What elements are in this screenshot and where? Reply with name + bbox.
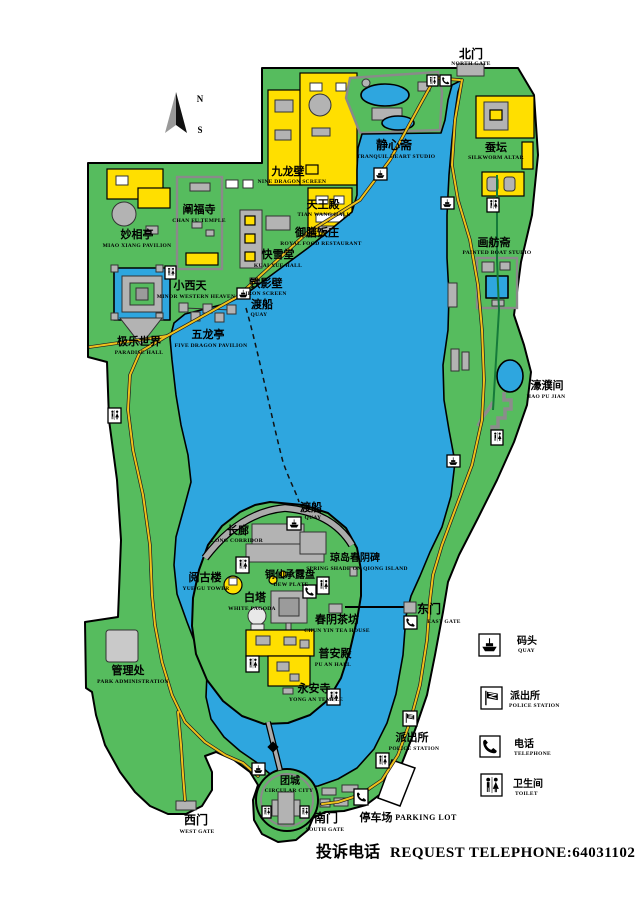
place-en: PARADISE HALL [115, 350, 164, 356]
east-gate-building [404, 602, 416, 613]
legend-zh: 码头 [517, 634, 537, 647]
place-en: LONG CORRIDOR [211, 538, 264, 544]
small-hall [275, 100, 293, 112]
place-en: NINE DRAGON SCREEN [258, 179, 327, 185]
place-zh: 五龙亭 [192, 327, 225, 341]
painted-boat-hall [482, 262, 494, 272]
place-en: SPRING SHADE ON QIONG ISLAND [306, 566, 408, 572]
place-en: TRANQUIL HEART STUDIO [357, 154, 436, 160]
legend-zh: 电话 [514, 737, 534, 750]
label-pu-an-hall: 普安殿 PU AN HALL [315, 646, 353, 668]
compass-needle-dark [176, 92, 187, 133]
place-en: DEW PLATE [273, 582, 308, 588]
kuai-xue-court [245, 216, 255, 225]
toilet-icon [246, 656, 259, 672]
place-zh: 北门 [459, 46, 483, 61]
label-police-station-map: 派出所 POLICE STATION [389, 730, 440, 752]
strip-building [451, 349, 459, 371]
toilet-icon [427, 75, 438, 86]
police-icon [403, 711, 417, 726]
place-zh: 铜仙承露盘 [265, 568, 315, 581]
yue-gu-tower-court [229, 578, 237, 585]
place-zh: 天王殿 [307, 198, 341, 211]
place-en: SILKWORM ALTAR [468, 155, 524, 161]
legend-en: QUAY [518, 648, 535, 654]
toilet-icon [236, 557, 249, 573]
temple-hall [290, 674, 299, 681]
park-admin-building [106, 630, 138, 662]
telephone-icon [354, 789, 368, 805]
label-west-gate: 西门 WEST GATE [179, 812, 214, 835]
label-iron-screen: 铁影壁 IRON SCREEN [245, 276, 286, 297]
small-hall [226, 180, 238, 188]
place-zh: 西门 [184, 812, 208, 827]
quay-icon [287, 517, 301, 530]
place-zh: 团城 [280, 774, 300, 787]
place-en: YUE GU TOWER [182, 586, 230, 592]
place-zh: 渡船 [300, 500, 322, 514]
place-zh: 极乐世界 [117, 334, 161, 348]
legend-item-toilet: 卫生间 TOILET [481, 774, 543, 797]
place-en: PAINTED BOAT STUDIO [463, 250, 532, 256]
dragon-pavilion [215, 313, 224, 322]
legend-item-telephone: 电话 TELEPHONE [480, 736, 551, 757]
toilet-icon [165, 266, 176, 279]
telephone-icon [440, 75, 451, 86]
place-en: KUAI XUE HALL [254, 263, 302, 269]
dragon-pavilion [179, 303, 188, 312]
miao-xiang-pavilion-building [112, 202, 136, 226]
compass-north-label: N [197, 94, 204, 104]
place-en: NORTH GATE [451, 61, 491, 67]
place-en: ROYAL FOOD RESTAURANT [280, 241, 362, 247]
label-paradise-hall: 极乐世界 PARADISE HALL [115, 334, 164, 356]
place-en: PU AN HALL [315, 662, 351, 668]
place-zh: 蚕坛 [484, 140, 507, 154]
legend-en: TOILET [515, 791, 538, 797]
strip-building [462, 352, 469, 370]
white-pagoda-court [279, 598, 299, 616]
place-en: PARK ADMINISTRATION [97, 679, 169, 685]
legend-item-police: 派出所 POLICE STATION [481, 687, 560, 709]
place-zh: 阅古楼 [189, 570, 222, 584]
temple-hall [300, 640, 309, 648]
west-gate-building [176, 801, 196, 810]
place-en: HAO PU JIAN [527, 394, 566, 400]
place-en: WEST GATE [179, 829, 214, 835]
tea-house-building [329, 604, 342, 613]
place-zh: 小西天 [173, 278, 208, 292]
place-zh: 九龙壁 [271, 164, 305, 178]
place-en: POLICE STATION [389, 746, 440, 752]
small-hall [116, 176, 128, 185]
small-hall [310, 83, 322, 91]
place-en: FIVE DRAGON PAVILION [175, 343, 248, 349]
footer: 投诉电话 REQUEST TELEPHONE:64031102 [316, 842, 635, 861]
telephone-icon [480, 736, 500, 757]
small-hall [312, 128, 330, 136]
quay-icon [441, 197, 454, 209]
place-zh: 白塔 [244, 590, 267, 604]
place-zh: 御膳饭庄 [294, 225, 339, 239]
toilet-icon [487, 198, 499, 212]
place-en: MINOR WESTERN HEAVEN [157, 294, 236, 300]
small-pavilion [362, 79, 370, 87]
legend-en: POLICE STATION [509, 703, 560, 709]
place-en: CHUN YIN TEA HOUSE [304, 628, 370, 634]
quay-icon [252, 763, 265, 775]
legend-item-quay: 码头 QUAY [479, 634, 537, 656]
place-zh: 长廊 [227, 523, 249, 537]
place-zh: 阐福寺 [183, 202, 216, 216]
place-en: QUAY [251, 312, 268, 318]
small-hall [275, 130, 291, 140]
label-north-gate: 北门 NORTH GATE [451, 46, 491, 67]
small-hall [190, 183, 210, 191]
corner-pavilion [111, 313, 118, 320]
chan-fu-main-hall [186, 253, 218, 265]
corner-pavilion [111, 265, 118, 272]
silkworm-altar-inner [490, 110, 502, 120]
compass: N S [165, 92, 204, 135]
toilet-icon [317, 577, 329, 594]
place-en: TIAN WANG HALL [297, 212, 350, 218]
place-en: QUAY [305, 515, 322, 521]
place-zh: 铁影壁 [250, 276, 283, 290]
kuai-xue-court [245, 234, 255, 243]
place-zh: 濠濮间 [531, 378, 564, 392]
place-zh: 快雪堂 [261, 247, 295, 261]
toilet-icon [376, 753, 389, 768]
toilet-icon [262, 806, 271, 818]
temple-hall [277, 662, 289, 671]
quay-icon [447, 455, 460, 467]
place-en: PARKING LOT [395, 813, 457, 822]
nine-dragon-screen-wall [306, 165, 318, 174]
place-en: MIAO XIANG PAVILION [103, 243, 172, 249]
temple-hall [284, 637, 296, 645]
place-zh: 管理处 [112, 663, 146, 677]
toilet-icon [481, 774, 502, 796]
quay-icon [374, 168, 387, 180]
legend-zh: 卫生间 [513, 777, 543, 790]
small-hall [336, 83, 346, 91]
chengguang-hall [278, 792, 294, 824]
label-hao-pu-jian: 濠濮间 HAO PU JIAN [527, 378, 566, 400]
place-zh: 普安殿 [319, 646, 353, 660]
label-parking: 停车场 PARKING LOT [360, 810, 457, 824]
place-zh: 画舫斋 [478, 235, 512, 249]
toilet-icon [300, 806, 309, 818]
miao-xiang-yellow-hall [138, 188, 170, 208]
tranquil-heart-pond [361, 84, 409, 106]
place-en: IRON SCREEN [245, 291, 286, 297]
place-en: CIRCULAR CITY [265, 788, 314, 794]
island-hall [300, 532, 326, 554]
compass-south-label: S [197, 125, 202, 135]
place-zh: 妙相亭 [121, 227, 154, 241]
place-en: CHAN FU TEMPLE [172, 218, 226, 224]
strip-building [448, 283, 457, 307]
place-en: EAST GATE [427, 619, 461, 625]
legend-zh: 派出所 [510, 689, 540, 702]
map-canvas: N S 北门 NORTH GATE 静心斋 TRANQUIL HEART STU… [0, 0, 640, 916]
place-en: WHITE PAGODA [228, 606, 276, 612]
round-pavilion [309, 94, 331, 116]
place-zh: 永安寺 [297, 681, 331, 695]
place-en: YONG AN TEMPLE [289, 697, 343, 703]
label-dew-plate: 铜仙承露盘 DEW PLATE [265, 568, 315, 588]
place-zh: 派出所 [396, 730, 429, 744]
place-zh: 东门 [417, 601, 441, 616]
place-zh: 渡船 [251, 297, 273, 311]
legend-en: TELEPHONE [514, 751, 551, 757]
minor-western-heaven-hall [136, 288, 148, 300]
complaint-phone-label-zh: 投诉电话 [316, 842, 380, 861]
place-en: SOUTH GATE [306, 827, 345, 833]
temple-hall [256, 636, 270, 645]
place-zh: 琼岛春阴碑 [330, 551, 380, 564]
kuai-xue-court [245, 252, 255, 261]
beihai-park-map: N S 北门 NORTH GATE 静心斋 TRANQUIL HEART STU… [0, 0, 640, 916]
compass-needle-light [165, 92, 176, 133]
legend: 码头 QUAY 派出所 POLICE STATION 电话 TELEPHONE … [479, 634, 560, 797]
telephone-icon [404, 616, 417, 629]
parking-building [322, 788, 336, 795]
place-zh: 南门 [314, 810, 338, 825]
temple-gate [283, 688, 293, 694]
complaint-phone-label-en: REQUEST TELEPHONE:64031102 [390, 845, 635, 861]
toilet-icon [491, 430, 503, 445]
painted-boat-hall [500, 262, 510, 270]
dragon-pavilion [227, 305, 236, 314]
place-zh: 停车场 [360, 810, 393, 824]
toilet-icon [108, 408, 121, 423]
annex-building [504, 177, 515, 191]
small-hall [206, 230, 214, 236]
place-zh: 春阴茶坊 [315, 612, 359, 626]
corner-pavilion [156, 265, 163, 272]
royal-food-building [266, 216, 290, 230]
hao-pu-jian-pond [497, 360, 523, 392]
small-hall [243, 180, 253, 188]
place-zh: 静心斋 [376, 137, 413, 152]
